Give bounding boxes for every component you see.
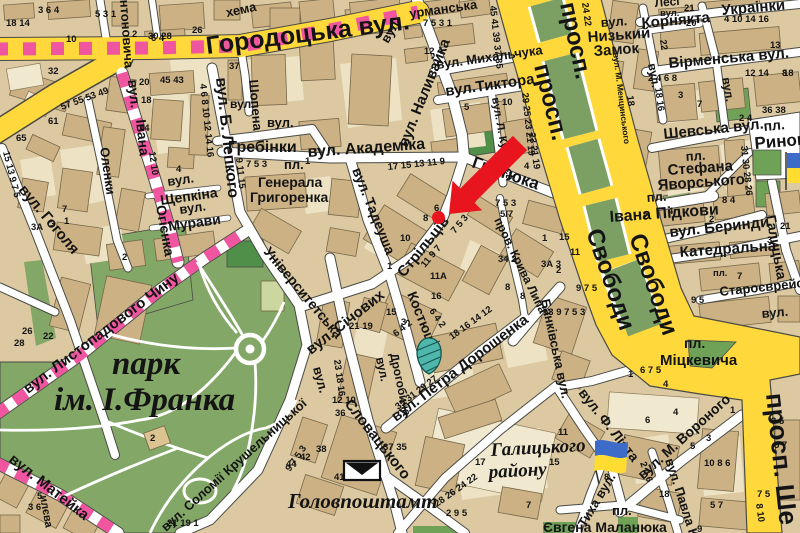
svg-text:61: 61 [48,116,59,127]
svg-text:45 43: 45 43 [160,75,184,86]
svg-text:1: 1 [387,261,393,272]
svg-text:Гребінки: Гребінки [228,139,297,156]
svg-text:20: 20 [686,18,697,29]
svg-text:6: 6 [645,415,650,426]
svg-text:6 7 5: 6 7 5 [640,365,662,376]
svg-text:1: 1 [542,233,548,244]
svg-text:3: 3 [50,219,55,230]
svg-text:Євгена Маланюка: Євгена Маланюка [543,519,667,533]
svg-text:9 5: 9 5 [691,295,705,306]
svg-text:4: 4 [176,164,182,175]
svg-text:вул.: вул. [660,8,679,19]
svg-text:11: 11 [558,427,569,438]
svg-text:13: 13 [770,40,781,51]
svg-text:пл.: пл. [684,335,705,351]
svg-text:Головпоштамт: Головпоштамт [287,489,437,513]
svg-text:1: 1 [305,156,311,167]
svg-text:2 4: 2 4 [739,113,753,124]
svg-text:району: району [486,459,548,483]
svg-text:5/7: 5/7 [500,209,513,220]
svg-text:1: 1 [628,369,634,380]
svg-text:7: 7 [737,271,742,282]
svg-text:4: 4 [524,161,530,172]
svg-text:2 4 6 8: 2 4 6 8 [648,73,677,84]
svg-text:22: 22 [657,39,669,51]
svg-text:37 35: 37 35 [383,442,407,453]
svg-text:17: 17 [475,457,486,468]
svg-text:21: 21 [684,3,695,14]
svg-text:1: 1 [64,216,70,227]
svg-text:8: 8 [423,213,428,224]
svg-text:65: 65 [16,133,27,144]
svg-text:15: 15 [549,457,560,468]
svg-text:12 10: 12 10 [332,395,356,406]
svg-text:3 6 4: 3 6 4 [38,5,60,16]
svg-text:вул.: вул. [761,304,789,321]
svg-text:30 28: 30 28 [148,31,172,42]
svg-text:14: 14 [139,123,150,134]
svg-text:37: 37 [229,61,240,72]
svg-text:пл.: пл. [713,268,727,279]
svg-text:5: 5 [37,491,43,502]
svg-text:4 10 14 16: 4 10 14 16 [724,14,769,25]
svg-text:16: 16 [431,291,442,302]
svg-text:7 5 3: 7 5 3 [246,159,267,170]
svg-text:26: 26 [22,326,33,337]
svg-text:10: 10 [66,34,77,45]
svg-text:ім. І.Франка: ім. І.Франка [54,382,235,418]
svg-text:28: 28 [14,338,25,349]
svg-text:34 2: 34 2 [498,254,517,265]
svg-text:7: 7 [697,99,702,110]
svg-text:8: 8 [604,472,609,483]
svg-text:Генерала: Генерала [258,174,322,190]
svg-text:15: 15 [559,232,570,243]
svg-text:Міцкевича: Міцкевича [660,352,738,369]
svg-text:парк: парк [112,346,181,382]
svg-text:21: 21 [780,221,791,232]
svg-text:7: 7 [526,500,531,511]
svg-text:18: 18 [659,489,670,500]
svg-text:2: 2 [709,214,714,225]
svg-text:18 14: 18 14 [6,18,30,29]
svg-text:4: 4 [663,379,669,390]
svg-text:2: 2 [122,252,127,263]
svg-text:42: 42 [300,452,311,463]
svg-text:Ринок: Ринок [754,130,800,153]
svg-text:7 5 3: 7 5 3 [495,198,516,209]
svg-text:36: 36 [335,408,346,419]
svg-text:пл.: пл. [646,189,667,205]
svg-text:9: 9 [697,524,702,533]
svg-text:8 4: 8 4 [722,195,736,206]
svg-text:21 19: 21 19 [349,321,373,332]
svg-text:44: 44 [286,459,297,470]
svg-text:1: 1 [730,405,736,416]
svg-text:21 19 1: 21 19 1 [167,518,199,529]
svg-text:2: 2 [150,433,155,444]
svg-text:18: 18 [141,95,152,106]
svg-text:38: 38 [316,444,327,455]
svg-text:8: 8 [505,282,510,293]
svg-text:2: 2 [643,211,648,222]
svg-text:5 3 1: 5 3 1 [95,9,117,20]
svg-text:12 14: 12 14 [745,68,769,79]
svg-text:Григоренка: Григоренка [250,189,329,205]
svg-text:7 5: 7 5 [757,489,771,500]
svg-text:11А: 11А [430,271,447,282]
svg-text:3: 3 [706,433,711,444]
svg-text:3 6: 3 6 [28,502,41,513]
svg-text:2: 2 [132,29,137,40]
svg-text:5 7: 5 7 [710,500,723,511]
svg-text:20: 20 [139,77,150,88]
svg-text:пл.: пл. [284,157,304,172]
svg-text:4: 4 [668,206,674,217]
svg-text:3А: 3А [31,222,43,233]
svg-text:5 7: 5 7 [774,440,787,451]
svg-text:10: 10 [400,233,411,244]
svg-text:10 8 6: 10 8 6 [704,458,730,469]
svg-text:11: 11 [570,247,581,258]
svg-text:5: 5 [464,102,470,113]
svg-text:3: 3 [678,90,683,101]
svg-text:3 5: 3 5 [771,416,785,427]
svg-text:5: 5 [690,441,696,452]
svg-text:вул.: вул. [267,115,294,130]
svg-text:9 7 5: 9 7 5 [576,283,598,294]
svg-text:4: 4 [673,407,679,418]
svg-text:15: 15 [386,307,397,318]
svg-text:2 9 5: 2 9 5 [446,508,468,519]
svg-text:7 5 3 1: 7 5 3 1 [423,18,453,29]
svg-text:12 4: 12 4 [424,46,443,57]
svg-text:36 38: 36 38 [762,105,786,116]
svg-text:8: 8 [520,291,525,302]
svg-text:22: 22 [43,331,54,342]
svg-text:13 9 7 5 3: 13 9 7 5 3 [543,307,585,318]
svg-text:26: 26 [192,25,203,36]
svg-text:2: 2 [556,265,561,276]
svg-text:7: 7 [62,204,67,215]
svg-text:32: 32 [48,66,59,77]
svg-text:8: 8 [782,68,787,79]
svg-text:10: 10 [502,97,513,108]
svg-text:18: 18 [624,95,636,107]
svg-text:3: 3 [767,235,772,246]
svg-text:пл.: пл. [612,503,632,518]
